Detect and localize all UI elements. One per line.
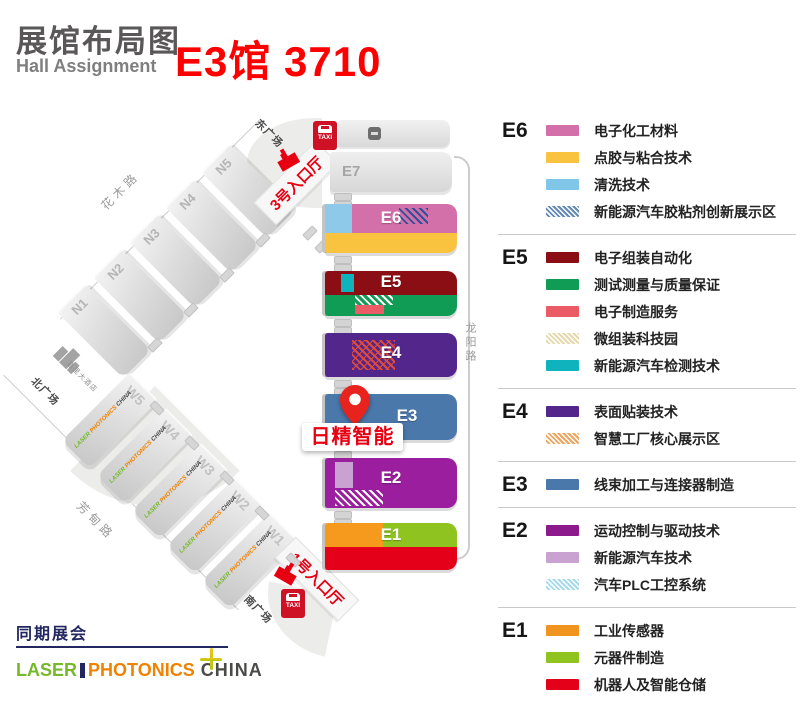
legend-item: 微组装科技园 <box>546 325 796 352</box>
legend-swatch <box>546 579 579 590</box>
hall-label: E4 <box>365 343 417 363</box>
legend-swatch <box>546 333 579 344</box>
legend-label: 智慧工厂核心展示区 <box>594 429 720 449</box>
legend-item: 工业传感器 <box>546 617 796 644</box>
concurrent-show-label: 同期展会 <box>16 620 88 644</box>
hall-e7: E7 <box>330 152 452 192</box>
logo-photonics: PHOTONICS <box>88 660 195 680</box>
legend-section-e2: E2 运动控制与驱动技术 新能源汽车技术 汽车PLC工控系统 <box>498 508 796 608</box>
road-north-label: 花木路 <box>97 168 143 214</box>
hall-label: E1 <box>365 525 417 545</box>
legend-section-id: E1 <box>502 617 546 698</box>
station-icon <box>368 127 381 140</box>
legend-item: 智慧工厂核心展示区 <box>546 425 796 452</box>
e5-hatch-zone <box>355 295 393 305</box>
legend-item: 表面贴装技术 <box>546 398 796 425</box>
hall-label: N2 <box>96 252 135 291</box>
hall-label: W5 <box>115 376 155 416</box>
legend-swatch <box>546 206 579 217</box>
legend-label: 清洗技术 <box>594 175 650 195</box>
e5-sub-block <box>355 305 384 314</box>
legend-swatch <box>546 152 579 163</box>
logo-divider <box>80 663 85 678</box>
legend-item: 电子组装自动化 <box>546 244 796 271</box>
taxi-icon-north: TAXI <box>313 121 337 150</box>
taxi-label: TAXI <box>313 134 337 141</box>
taxi-label: TAXI <box>281 602 305 609</box>
legend-swatch <box>546 179 579 190</box>
legend-label: 电子制造服务 <box>594 302 678 322</box>
hall-label: N4 <box>168 182 207 221</box>
location-pin-icon <box>340 385 370 425</box>
legend-item: 电子化工材料 <box>546 117 796 144</box>
legend-label: 微组装科技园 <box>594 329 678 349</box>
e6-cleaning-block <box>325 204 352 233</box>
legend-label: 元器件制造 <box>594 648 664 668</box>
car-glyph <box>286 593 300 601</box>
legend-swatch <box>546 525 579 536</box>
legend-label: 新能源汽车胶粘剂创新展示区 <box>594 202 776 222</box>
legend-item: 新能源汽车检测技术 <box>546 352 796 379</box>
hall-e5: E5 <box>325 271 457 316</box>
legend-label: 测试测量与质量保证 <box>594 275 720 295</box>
legend-item: 测试测量与质量保证 <box>546 271 796 298</box>
legend-label: 新能源汽车检测技术 <box>594 356 720 376</box>
taxi-icon-south: TAXI <box>281 589 305 618</box>
laser-photonics-china-logo: LASERPHOTONICSCHINA <box>16 660 263 681</box>
legend-swatch <box>546 252 579 263</box>
legend-section-id: E3 <box>502 471 546 498</box>
legend-swatch <box>546 652 579 663</box>
legend-section-id: E4 <box>502 398 546 452</box>
hall-connector <box>302 225 318 241</box>
legend-item: 汽车PLC工控系统 <box>546 571 796 598</box>
legend-item: 运动控制与驱动技术 <box>546 517 796 544</box>
hall-connector <box>334 319 352 327</box>
legend-section-e1: E1 工业传感器 元器件制造 机器人及智能仓储 <box>498 608 796 706</box>
legend-label: 表面贴装技术 <box>594 402 678 422</box>
legend-label: 机器人及智能仓储 <box>594 675 706 695</box>
legend-swatch <box>546 625 579 636</box>
hall-e6: E6 <box>325 204 457 253</box>
legend-label: 新能源汽车技术 <box>594 548 692 568</box>
legend: E6 电子化工材料 点胶与粘合技术 清洗技术 新能源汽车胶粘剂创新展示区 E5 <box>498 108 796 706</box>
footer-divider <box>16 646 228 648</box>
legend-swatch <box>546 360 579 371</box>
logo-laser: LASER <box>16 660 77 680</box>
e5-teal-block <box>341 274 354 292</box>
legend-item: 机器人及智能仓储 <box>546 671 796 698</box>
legend-item: 线束加工与连接器制造 <box>546 471 796 498</box>
legend-swatch <box>546 479 579 490</box>
legend-label: 点胶与粘合技术 <box>594 148 692 168</box>
page-title: 展馆布局图 <box>16 16 181 61</box>
hall-connector <box>219 267 235 283</box>
road-east-label: 龙阳路 <box>462 322 478 364</box>
legend-section-id: E2 <box>502 517 546 598</box>
hall-connector <box>147 337 163 353</box>
hall-e4: E4 <box>325 333 457 377</box>
legend-swatch <box>546 125 579 136</box>
e2-patch-block <box>335 462 353 488</box>
hall-label: E7 <box>342 163 360 180</box>
legend-section-id: E5 <box>502 244 546 379</box>
legend-section-e3: E3 线束加工与连接器制造 <box>498 462 796 508</box>
station-bar <box>338 120 450 147</box>
e6-bottom-band <box>325 233 457 253</box>
legend-section-e6: E6 电子化工材料 点胶与粘合技术 清洗技术 新能源汽车胶粘剂创新展示区 <box>498 108 796 235</box>
legend-swatch <box>546 679 579 690</box>
legend-label: 运动控制与驱动技术 <box>594 521 720 541</box>
legend-section-id: E6 <box>502 117 546 225</box>
hall-label: E6 <box>365 208 417 228</box>
legend-item: 新能源汽车胶粘剂创新展示区 <box>546 198 796 225</box>
legend-item: 元器件制造 <box>546 644 796 671</box>
legend-item: 清洗技术 <box>546 171 796 198</box>
booth-highlight: E3馆 3710 <box>175 28 381 89</box>
hall-label: N3 <box>132 217 171 256</box>
hall-connector <box>334 193 352 201</box>
road-west-label: 芳甸路 <box>73 498 119 544</box>
hall-label: E2 <box>365 468 417 488</box>
legend-item: 电子制造服务 <box>546 298 796 325</box>
legend-swatch <box>546 306 579 317</box>
hall-label: N1 <box>60 287 99 326</box>
legend-label: 电子组装自动化 <box>594 248 692 268</box>
legend-swatch <box>546 279 579 290</box>
page-subtitle: Hall Assignment <box>16 56 156 77</box>
legend-swatch <box>546 552 579 563</box>
hall-connector <box>255 232 271 248</box>
legend-section-e4: E4 表面贴装技术 智慧工厂核心展示区 <box>498 389 796 462</box>
hotel-label: 嘉里大酒店 <box>64 359 99 394</box>
hall-connector <box>334 256 352 264</box>
hall-e1: E1 <box>325 523 457 570</box>
exhibitor-pin-label: 日精智能 <box>302 423 403 451</box>
logo-sparkle-icon <box>200 648 222 670</box>
hall-label: E5 <box>365 272 417 292</box>
legend-swatch <box>546 433 579 444</box>
hall-assignment-page: 展馆布局图 Hall Assignment E3馆 3710 花木路 芳甸路 龙… <box>0 0 800 706</box>
legend-label: 电子化工材料 <box>594 121 678 141</box>
legend-label: 工业传感器 <box>594 621 664 641</box>
hall-label: N5 <box>204 147 243 186</box>
hall-e2: E2 <box>325 458 457 508</box>
legend-swatch <box>546 406 579 417</box>
e1-bottom-band <box>325 547 457 570</box>
legend-item: 点胶与粘合技术 <box>546 144 796 171</box>
legend-label: 汽车PLC工控系统 <box>594 575 706 595</box>
hall-label: W2 <box>220 481 260 521</box>
e2-hatch-zone <box>335 490 383 506</box>
legend-label: 线束加工与连接器制造 <box>594 475 734 495</box>
legend-item: 新能源汽车技术 <box>546 544 796 571</box>
hall-connector <box>183 302 199 318</box>
legend-section-e5: E5 电子组装自动化 测试测量与质量保证 电子制造服务 微组装科技园 新能源汽车… <box>498 235 796 389</box>
hall-connector <box>334 511 352 519</box>
car-glyph <box>318 125 332 133</box>
